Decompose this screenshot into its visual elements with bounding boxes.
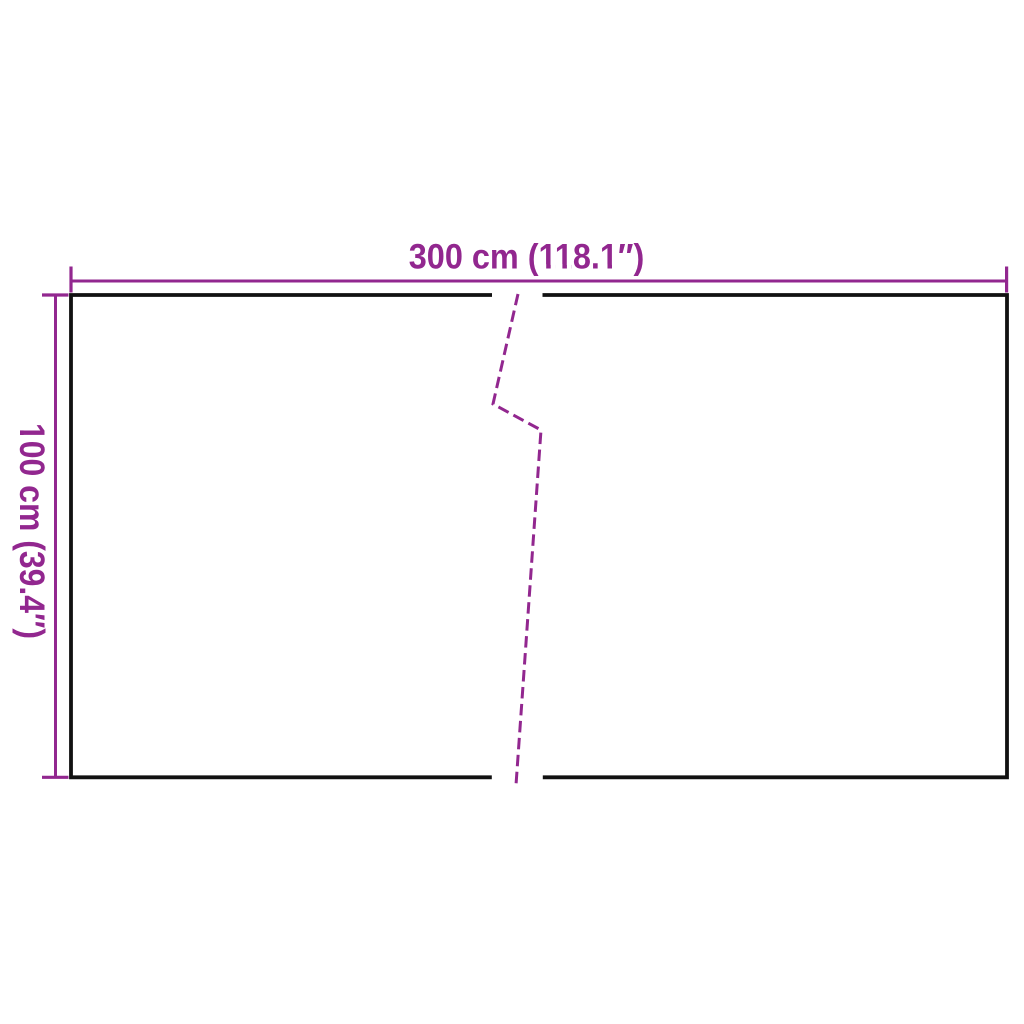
svg-text:100 cm (39.4″): 100 cm (39.4″) <box>12 423 51 639</box>
svg-text:300 cm (118.1″): 300 cm (118.1″) <box>409 238 645 277</box>
